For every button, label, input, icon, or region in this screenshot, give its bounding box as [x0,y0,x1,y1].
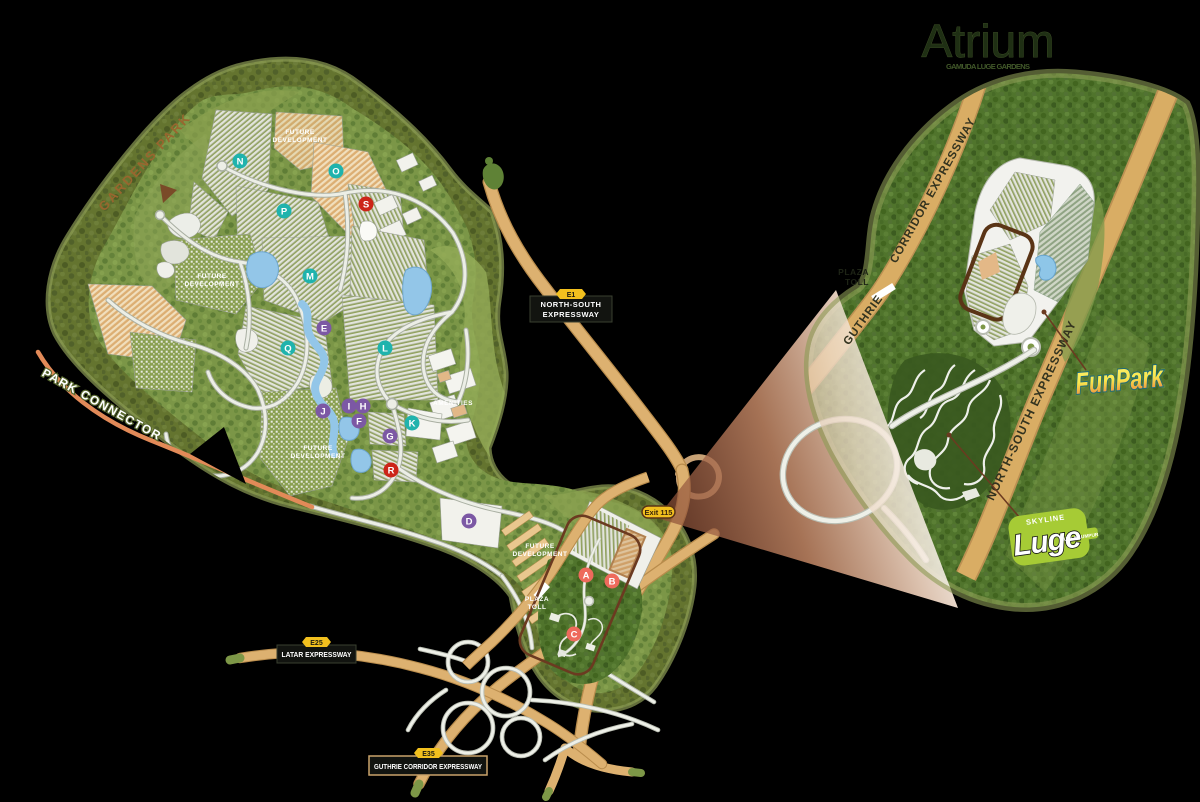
svg-text:F: F [356,417,362,428]
svg-text:EXPRESSWAY: EXPRESSWAY [543,310,600,319]
svg-text:L: L [382,344,388,355]
svg-text:NORTH-SOUTH: NORTH-SOUTH [541,300,602,309]
svg-text:D: D [466,517,473,528]
svg-text:DEVELOPMENT: DEVELOPMENT [273,137,328,144]
svg-text:M: M [306,272,314,283]
svg-text:E1: E1 [567,292,576,299]
svg-text:TOLL: TOLL [845,277,869,287]
svg-text:Atrium: Atrium [922,15,1055,67]
svg-text:TOLL: TOLL [528,604,547,611]
svg-text:J: J [320,407,325,418]
svg-text:K: K [409,419,416,430]
svg-text:Q: Q [284,344,291,355]
svg-text:DEVELOPMENT: DEVELOPMENT [291,453,346,460]
svg-text:PLAZA: PLAZA [525,596,549,603]
svg-text:A: A [583,571,590,582]
svg-text:E25: E25 [310,640,323,647]
svg-text:DEVELOPMENT: DEVELOPMENT [513,551,568,558]
svg-text:N: N [237,157,244,168]
svg-text:E35: E35 [422,751,435,758]
svg-text:G: G [386,432,393,443]
svg-text:GAMUDA LUGE GARDENS: GAMUDA LUGE GARDENS [946,62,1030,71]
svg-text:H: H [360,402,367,413]
svg-text:LATAR EXPRESSWAY: LATAR EXPRESSWAY [282,650,352,659]
svg-text:FUTURE: FUTURE [285,129,315,136]
svg-text:PLAZA: PLAZA [838,267,869,277]
svg-text:I: I [348,402,351,413]
svg-text:S: S [363,200,369,211]
svg-text:E: E [321,324,327,335]
svg-text:P: P [281,207,288,218]
svg-text:FUTURE: FUTURE [303,445,333,452]
svg-text:DEVELOPMENT: DEVELOPMENT [185,281,240,288]
svg-text:O: O [332,167,339,178]
svg-text:R: R [388,466,395,477]
svg-text:FUTURE: FUTURE [525,543,555,550]
svg-text:GUTHRIE CORRIDOR EXPRESSWAY: GUTHRIE CORRIDOR EXPRESSWAY [374,762,482,771]
svg-text:B: B [609,577,616,588]
svg-text:Exit 115: Exit 115 [645,508,673,517]
svg-text:AMENITIES: AMENITIES [433,400,473,407]
svg-text:C: C [571,630,578,641]
svg-text:FUTURE: FUTURE [197,273,227,280]
